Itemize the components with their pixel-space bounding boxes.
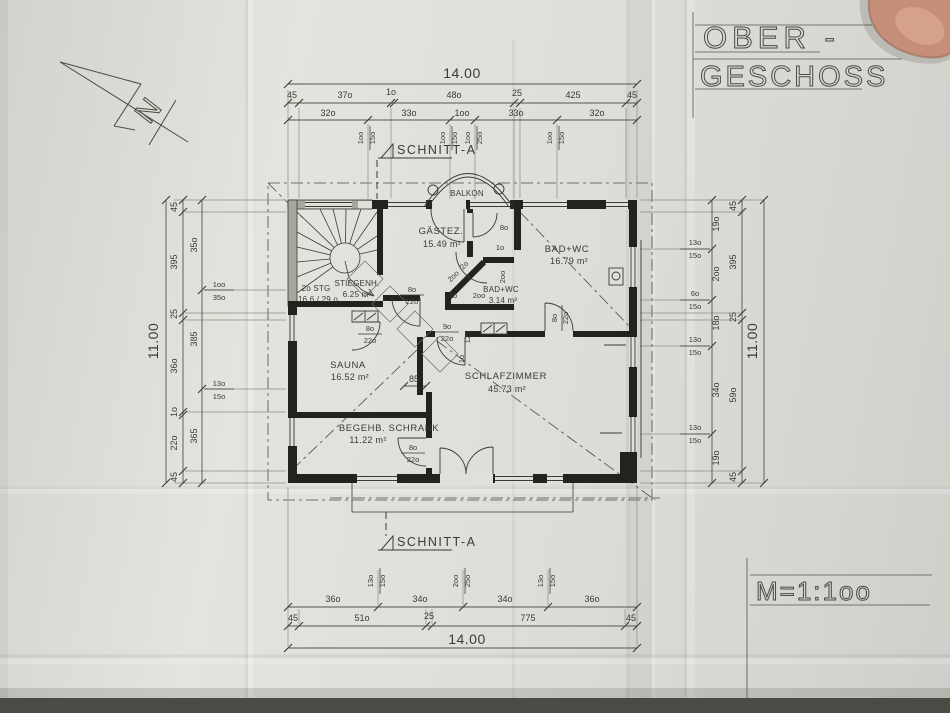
room-label-stiegenhaus: STIEGENH. bbox=[335, 279, 380, 288]
bath-fixture bbox=[609, 268, 623, 285]
dim-label: 6o bbox=[691, 289, 699, 298]
door-size-corridor: 8o bbox=[500, 223, 508, 232]
dim-label: 385 bbox=[189, 331, 199, 346]
dim-label: 15o bbox=[378, 575, 387, 588]
dim-label: 45 bbox=[169, 202, 179, 212]
dim-label: 45 bbox=[627, 90, 637, 100]
dim-label: 37o bbox=[337, 90, 352, 100]
dim-label: 775 bbox=[520, 613, 535, 623]
room-area-gaestez: 15.49 m² bbox=[423, 239, 461, 249]
title-line2: GESCHOSS bbox=[700, 61, 888, 93]
dim-label: 45 bbox=[728, 472, 738, 482]
room-area-bad-gross: 16.79 m² bbox=[550, 256, 588, 266]
dim-label: 45 bbox=[169, 472, 179, 482]
dim-small: 2oo bbox=[446, 269, 461, 284]
door-size-schrank: 22o bbox=[407, 455, 420, 464]
dim-label: 15o bbox=[213, 392, 226, 401]
dim-label: 13o bbox=[536, 575, 545, 588]
dim-label: 25o bbox=[463, 575, 472, 588]
dim-label: 1oo bbox=[213, 280, 226, 289]
wall-hatch-cells bbox=[352, 311, 507, 334]
north-arrow bbox=[60, 62, 188, 145]
dim-label: 45 bbox=[626, 613, 636, 623]
dim-label: 365 bbox=[189, 428, 199, 443]
dim-label: 36o bbox=[325, 594, 340, 604]
dim-label: 15o bbox=[689, 302, 702, 311]
dim-label: 1oo bbox=[545, 132, 554, 145]
dim-small: 1o bbox=[449, 291, 457, 300]
dim-label: 36o bbox=[584, 594, 599, 604]
dim-label: 1oo bbox=[438, 132, 447, 145]
north-label: N bbox=[129, 92, 168, 129]
dim-label: 25 bbox=[512, 88, 522, 98]
dim-label: 34o bbox=[711, 382, 721, 397]
dim-label: 15o bbox=[548, 575, 557, 588]
room-label-bad-gross: BAD+WC bbox=[545, 244, 590, 255]
dim-label: 395 bbox=[169, 254, 179, 269]
dim-label: 13o bbox=[689, 423, 702, 432]
dim-overall-left: 11.00 bbox=[145, 323, 161, 360]
dim-label: 25o bbox=[475, 132, 484, 145]
room-area-bad-klein: 3.14 m² bbox=[489, 296, 518, 305]
dim-label: 15o bbox=[368, 132, 377, 145]
floorplan-photo: N OBER - GESCHOSS M=1:1oo SCHNITT-A SCHN… bbox=[0, 0, 950, 713]
scale-label: M=1:1oo bbox=[756, 576, 872, 606]
room-area-schlafzimmer: 45.73 m² bbox=[488, 384, 526, 394]
dim-label: 15o bbox=[557, 132, 566, 145]
room-area-sauna: 16.52 m² bbox=[331, 372, 369, 382]
room-label-schlafzimmer: SCHLAFZIMMER bbox=[465, 371, 547, 382]
dim-label: 2oo bbox=[711, 266, 721, 281]
dim-label: 13o bbox=[213, 379, 226, 388]
dim-label: 22o bbox=[169, 435, 179, 450]
dim-125: 125 bbox=[463, 331, 472, 344]
dim-label: 15o bbox=[689, 436, 702, 445]
dim-label: 1oo bbox=[356, 132, 365, 145]
dim-label: 35o bbox=[213, 293, 226, 302]
dim-label: 25 bbox=[424, 611, 434, 621]
finger bbox=[860, 0, 950, 70]
dim-label: 51o bbox=[354, 613, 369, 623]
dim-label: 34o bbox=[412, 594, 427, 604]
door-size-schlaf: 22o bbox=[441, 334, 454, 343]
door-size-sauna: 8o bbox=[366, 324, 374, 333]
dim-label: 2oo bbox=[451, 575, 460, 588]
dim-small: 1o bbox=[496, 243, 504, 252]
dim-small: 2o bbox=[458, 259, 470, 271]
room-label-gaestez: GÄSTEZ. bbox=[419, 226, 464, 237]
dim-label: 36o bbox=[169, 358, 179, 373]
dim-small: 2oo bbox=[473, 291, 486, 300]
dim-label: 45 bbox=[287, 90, 297, 100]
room-label-bad-klein: BAD+WC bbox=[483, 285, 519, 294]
stair-steps-label: 2o STG bbox=[302, 284, 331, 293]
dim-label: 25 bbox=[728, 312, 738, 322]
dim-small: 2oo bbox=[498, 271, 507, 284]
dim-label: 425 bbox=[565, 90, 580, 100]
dim-label: 13o bbox=[366, 575, 375, 588]
door-size-sauna: 22o bbox=[364, 336, 377, 345]
dim-label: 15o bbox=[689, 251, 702, 260]
dim-label: 1o bbox=[386, 87, 396, 97]
title-line1: OBER - bbox=[703, 20, 840, 55]
dim-label: 15o bbox=[450, 132, 459, 145]
dim-overall-bottom: 14.00 bbox=[448, 631, 486, 647]
dim-label: 1o bbox=[169, 407, 179, 417]
stair-rise-label: 16.6 / 29.o bbox=[298, 295, 338, 304]
door-size-schlaf: 9o bbox=[443, 322, 451, 331]
dim-label: 45 bbox=[728, 201, 738, 211]
dim-label: 1oo bbox=[454, 108, 469, 118]
dim-85: 85 bbox=[409, 374, 419, 384]
dim-small: 1o bbox=[457, 355, 466, 363]
dim-label: 25 bbox=[169, 309, 179, 319]
dim-label: 18o bbox=[711, 315, 721, 330]
section-label-bottom: SCHNITT-A bbox=[397, 535, 476, 549]
dim-label: 32o bbox=[320, 108, 335, 118]
dim-label: 19o bbox=[711, 450, 721, 465]
dim-label: 13o bbox=[689, 238, 702, 247]
dim-label: 1oo bbox=[463, 132, 472, 145]
dim-label: 45 bbox=[288, 613, 298, 623]
dim-label: 15o bbox=[689, 348, 702, 357]
dim-label: 13o bbox=[689, 335, 702, 344]
dim-label: 34o bbox=[497, 594, 512, 604]
door-size-gaestez: 8o bbox=[408, 285, 416, 294]
floorplan-drawing: N OBER - GESCHOSS M=1:1oo SCHNITT-A SCHN… bbox=[0, 0, 950, 713]
room-label-schrank: BEGEHB. SCHRANK bbox=[339, 423, 439, 434]
dim-label: 59o bbox=[728, 387, 738, 402]
door-size-schrank: 8o bbox=[409, 443, 417, 452]
dim-label: 395 bbox=[728, 254, 738, 269]
door-size-bad: 8o bbox=[550, 314, 559, 322]
dim-label: 33o bbox=[401, 108, 416, 118]
room-label-balkon: BALKON bbox=[450, 189, 484, 198]
dim-overall-top: 14.00 bbox=[443, 65, 481, 81]
door-size-gaestez: 22o bbox=[406, 297, 419, 306]
dim-label: 35o bbox=[189, 237, 199, 252]
dim-label: 19o bbox=[711, 216, 721, 231]
dim-label: 32o bbox=[589, 108, 604, 118]
dim-label: 48o bbox=[446, 90, 461, 100]
dimension-lines bbox=[166, 84, 764, 648]
room-area-stiegenhaus: 6.25 m² bbox=[343, 290, 372, 299]
room-area-schrank: 11.22 m² bbox=[349, 435, 386, 445]
dim-label: 33o bbox=[508, 108, 523, 118]
room-label-sauna: SAUNA bbox=[330, 360, 366, 371]
dim-overall-right: 11.00 bbox=[744, 323, 760, 360]
